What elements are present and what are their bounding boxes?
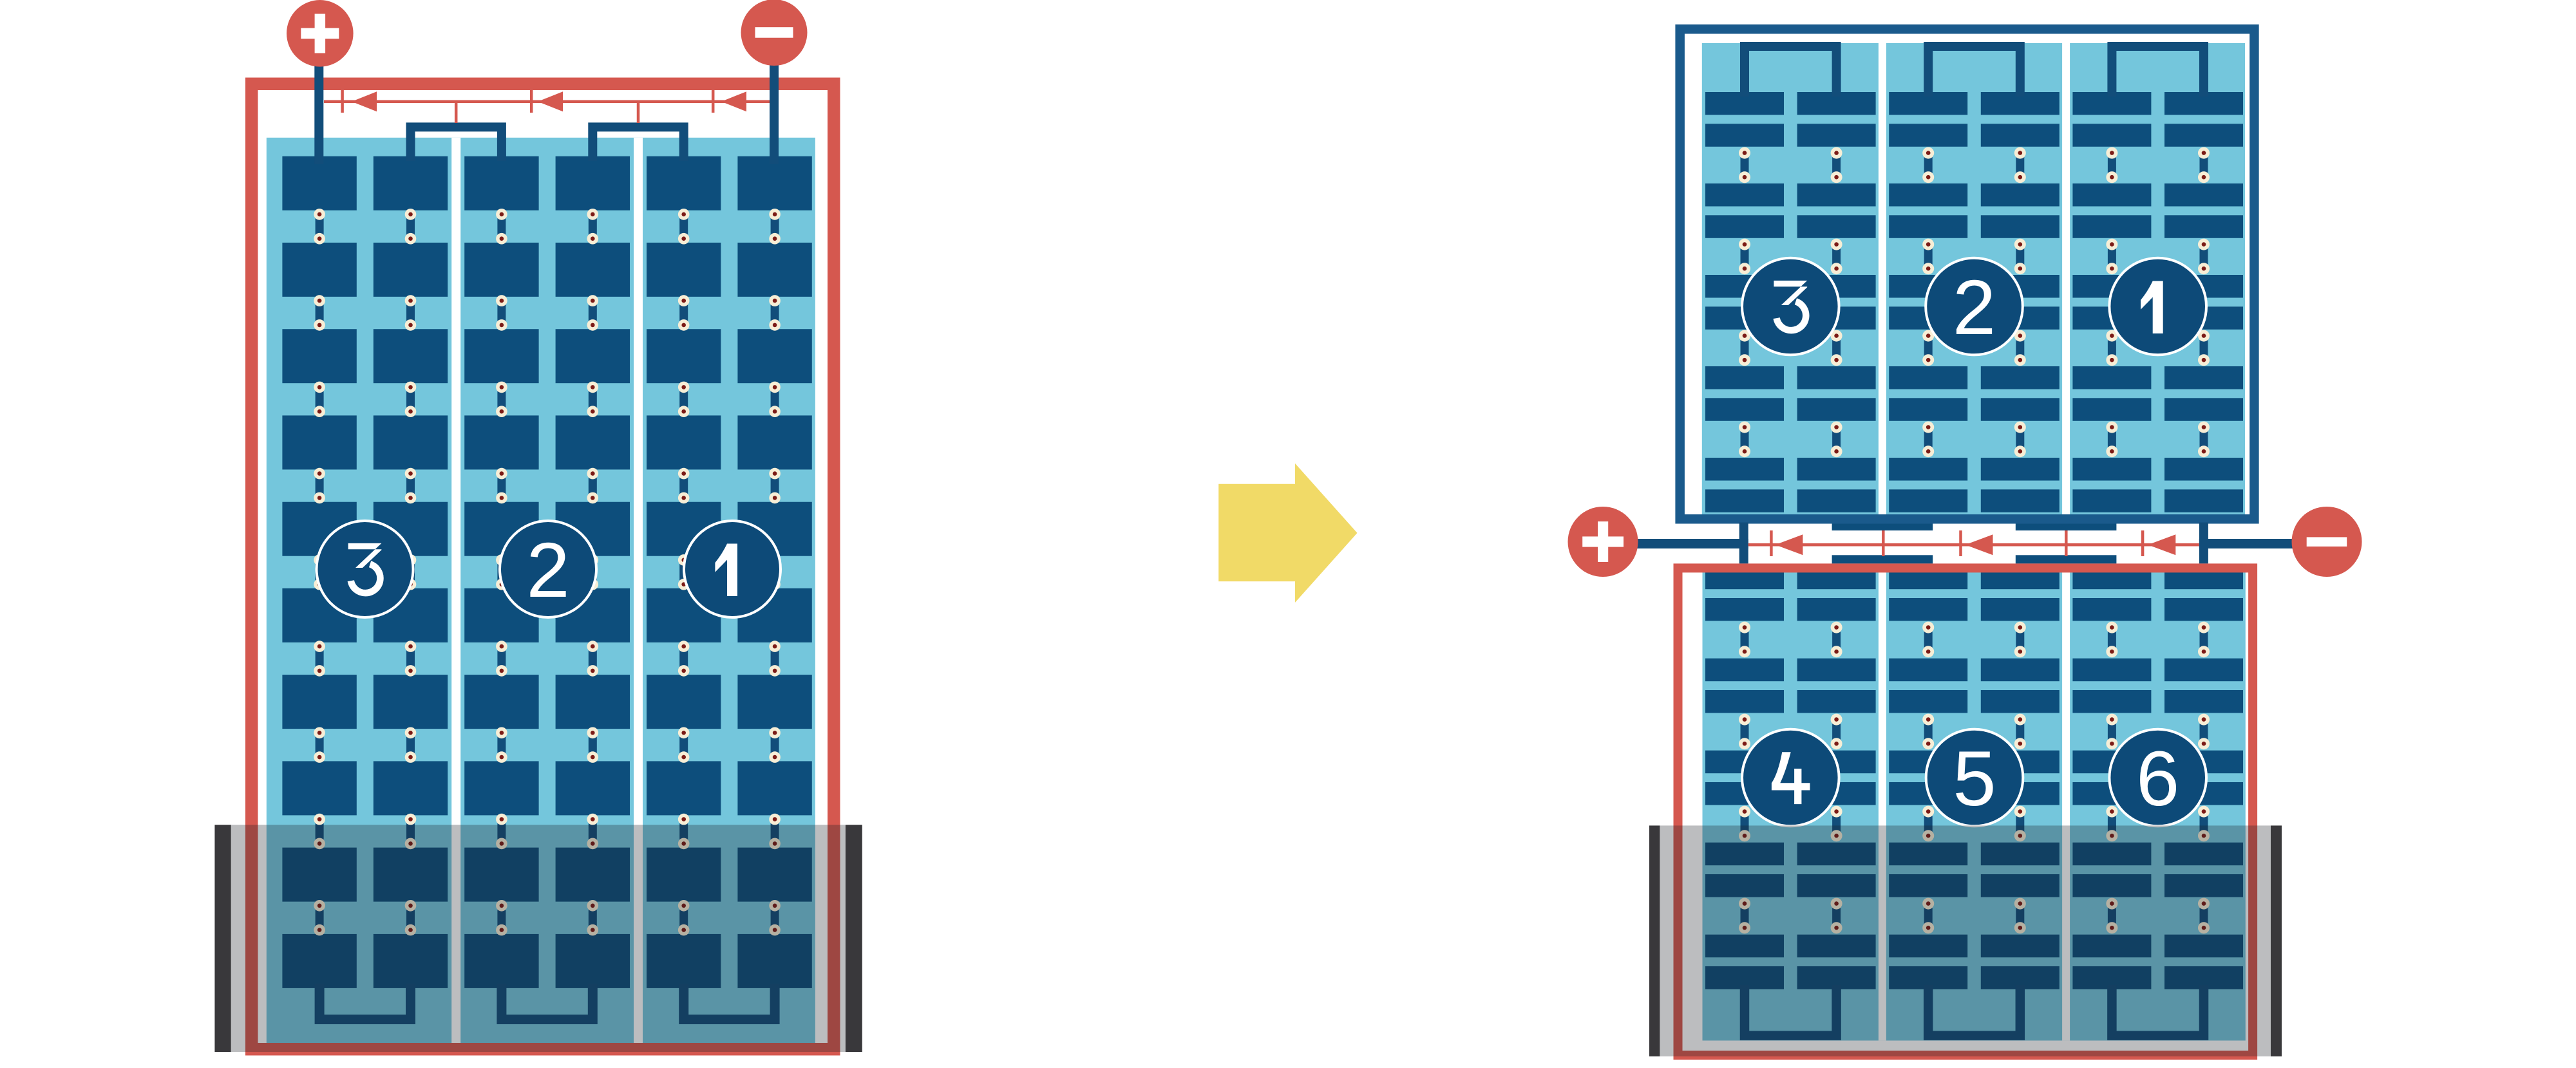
svg-text:2: 2 xyxy=(1953,263,1996,351)
svg-text:5: 5 xyxy=(1953,735,1996,822)
svg-text:2: 2 xyxy=(526,526,569,614)
svg-text:6: 6 xyxy=(2136,735,2179,822)
